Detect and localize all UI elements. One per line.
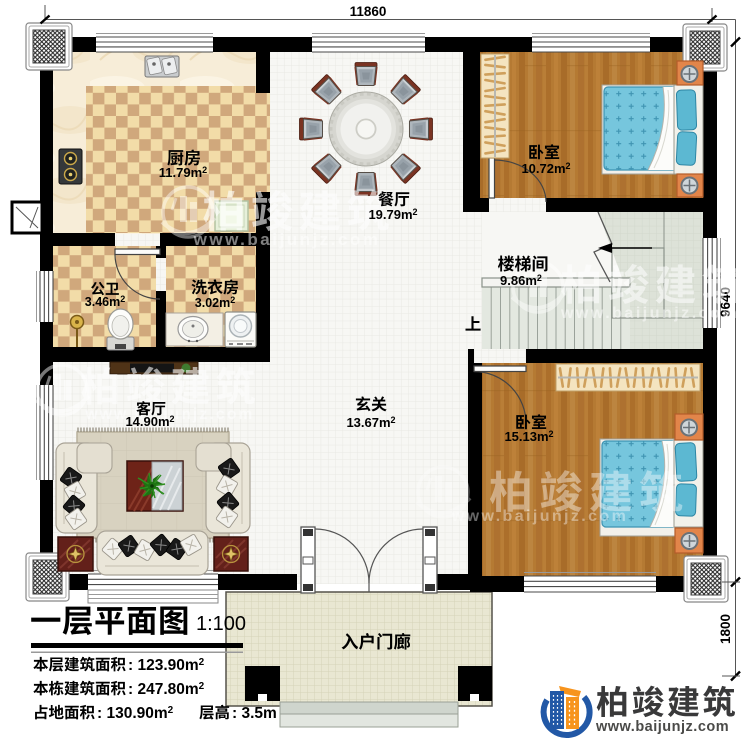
svg-text:www.baijunjz.com: www.baijunjz.com	[595, 719, 729, 735]
svg-text:www.baijunjz.com: www.baijunjz.com	[451, 508, 629, 525]
svg-text:: 247.80m2: : 247.80m2	[128, 681, 205, 698]
svg-text:3.46m2: 3.46m2	[85, 294, 125, 309]
svg-text:19.79m2: 19.79m2	[368, 207, 417, 222]
svg-text:www.baijunjz.com: www.baijunjz.com	[560, 305, 739, 322]
svg-text:3.02m2: 3.02m2	[195, 295, 235, 310]
svg-text:1800: 1800	[718, 614, 733, 644]
svg-text:1:100: 1:100	[196, 613, 246, 635]
svg-text:11860: 11860	[350, 4, 387, 19]
svg-text:14.90m2: 14.90m2	[125, 414, 174, 429]
svg-text:9.86m2: 9.86m2	[500, 273, 542, 288]
svg-text:11.79m2: 11.79m2	[159, 165, 207, 180]
svg-text:: 123.90m2: : 123.90m2	[128, 657, 205, 674]
svg-text:13.67m2: 13.67m2	[346, 415, 395, 430]
svg-text:www.baijunjz.com: www.baijunjz.com	[193, 230, 381, 249]
svg-text:15.13m2: 15.13m2	[504, 429, 553, 444]
svg-text:: 130.90m2: : 130.90m2	[97, 705, 174, 722]
svg-text:10.72m2: 10.72m2	[521, 161, 570, 176]
svg-text:: 3.5m: : 3.5m	[232, 705, 277, 722]
